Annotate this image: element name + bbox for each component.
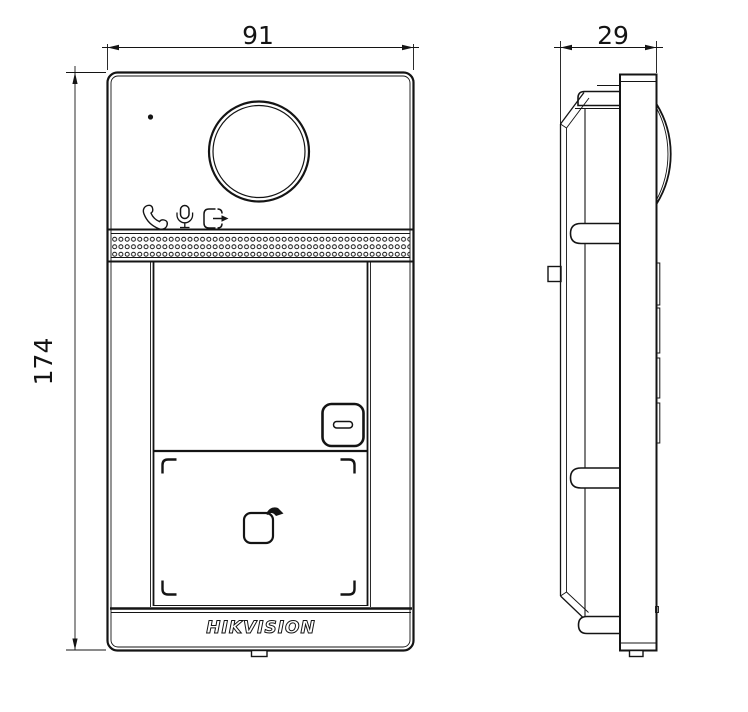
call-button-label-slot <box>334 422 353 429</box>
bottom-band <box>110 609 412 613</box>
bottom-tab <box>252 651 268 657</box>
recessed-panel <box>151 262 371 608</box>
front-height-value: 174 <box>29 338 58 386</box>
technical-drawing-page: HIKVISION 91 174 <box>0 0 748 712</box>
arrowhead-right <box>402 45 414 50</box>
microphone-icon <box>177 206 193 228</box>
clip-lower <box>571 468 621 488</box>
arrowhead-bottom <box>72 639 77 651</box>
corner-bracket-top-right <box>341 460 355 474</box>
card-reader-area <box>163 460 355 595</box>
front-view: HIKVISION <box>108 73 414 657</box>
arrowhead-top <box>72 73 77 85</box>
dimension-front-height: 174 <box>29 66 106 650</box>
arrowhead-left <box>108 45 120 50</box>
clip-top <box>578 92 620 106</box>
dimension-drawing-canvas: HIKVISION 91 174 <box>0 0 748 712</box>
camera-lens <box>209 102 309 202</box>
corner-bracket-top-left <box>163 460 177 474</box>
clip-bottom-hook <box>579 617 621 634</box>
speaker-grille <box>108 230 413 262</box>
side-depth-value: 29 <box>597 21 629 50</box>
front-cover-profile <box>620 75 671 657</box>
brand-logo: HIKVISION <box>206 618 315 638</box>
arrowhead-right <box>645 45 657 50</box>
clip-upper <box>571 224 621 244</box>
device-body-profile <box>571 86 621 634</box>
side-view <box>548 75 671 657</box>
dimension-front-width: 91 <box>102 21 419 70</box>
call-icon <box>143 205 167 229</box>
corner-bracket-bottom-right <box>341 581 355 595</box>
card-swipe-icon <box>244 507 284 543</box>
call-button[interactable] <box>323 404 364 446</box>
arrowhead-left <box>561 45 573 50</box>
camera-dome-profile <box>657 104 671 204</box>
side-protrusion <box>548 267 561 282</box>
front-width-value: 91 <box>242 21 274 50</box>
indicator-dot <box>148 114 153 119</box>
door-release-icon <box>204 209 229 228</box>
side-bottom-tab <box>630 651 644 657</box>
corner-bracket-bottom-left <box>163 581 177 595</box>
